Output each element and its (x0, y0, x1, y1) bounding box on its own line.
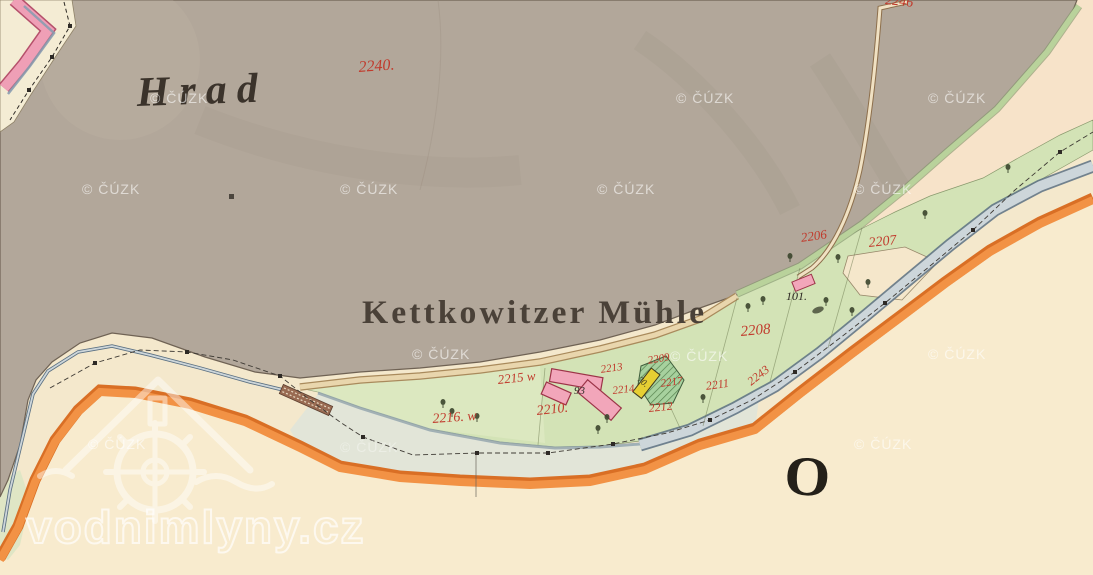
cuzk-watermark: © ČÚZK (412, 346, 470, 362)
cuzk-watermark: © ČÚZK (340, 181, 398, 197)
parcel-number-2215: 2215 w (497, 369, 536, 386)
cuzk-watermark: © ČÚZK (670, 348, 728, 364)
cuzk-watermark: © ČÚZK (597, 181, 655, 197)
cuzk-watermark: © ČÚZK (928, 346, 986, 362)
map-viewport[interactable]: Hrad Kettkowitzer Mühle O 2240. 2246 220… (0, 0, 1093, 575)
parcel-number-2212: 2212 (648, 399, 673, 413)
cuzk-watermark: © ČÚZK (88, 436, 146, 452)
house-number-93: 93 (574, 386, 585, 397)
parcel-number-2214: 2214 (612, 384, 635, 397)
cuzk-watermark: © ČÚZK (928, 90, 986, 106)
cuzk-watermark: © ČÚZK (82, 181, 140, 197)
sheet-letter: O (783, 448, 832, 506)
cuzk-watermark: © ČÚZK (854, 436, 912, 452)
parcel-number-2208: 2208 (740, 322, 771, 340)
house-number-101: 101. (786, 290, 807, 302)
parcel-number-2206: 2206 (800, 227, 828, 243)
parcel-number-2211: 2211 (705, 377, 730, 392)
parcel-number-2207: 2207 (868, 234, 897, 251)
cuzk-watermark: © ČÚZK (340, 439, 398, 455)
parcel-number-2240: 2240. (358, 57, 395, 75)
site-watermark: vodnimlyny.cz (26, 500, 366, 554)
mill-name-label: Kettkowitzer Mühle (362, 297, 707, 330)
hill-symbol-square (229, 194, 234, 199)
cuzk-watermark: © ČÚZK (150, 90, 208, 106)
cuzk-watermark: © ČÚZK (854, 181, 912, 197)
cuzk-watermark: © ČÚZK (676, 90, 734, 106)
